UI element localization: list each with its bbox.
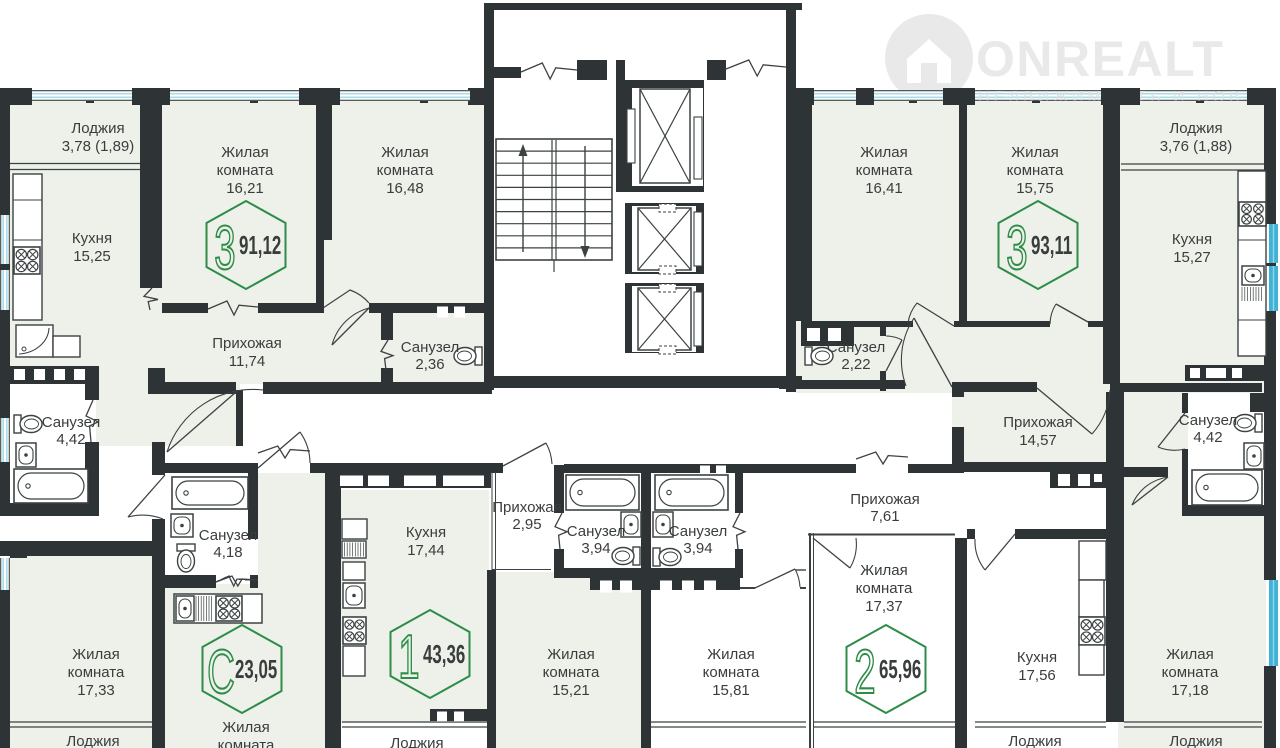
svg-text:91,12: 91,12: [239, 230, 281, 260]
svg-text:3: 3: [1006, 213, 1027, 283]
svg-text:4,18: 4,18: [213, 544, 242, 561]
svg-text:комната: комната: [1007, 162, 1064, 179]
svg-text:комната: комната: [68, 664, 125, 681]
svg-text:2: 2: [854, 637, 875, 707]
svg-text:комната: комната: [218, 737, 275, 748]
svg-text:1: 1: [398, 622, 419, 692]
svg-text:комната: комната: [856, 162, 913, 179]
svg-text:23,05: 23,05: [235, 654, 277, 684]
svg-text:3: 3: [214, 213, 235, 283]
svg-text:3,94: 3,94: [581, 540, 610, 557]
svg-text:Кухня: Кухня: [72, 230, 112, 247]
svg-text:Лоджия: Лоджия: [1008, 733, 1061, 748]
svg-text:15,25: 15,25: [73, 248, 111, 265]
svg-text:Жилая: Жилая: [221, 144, 268, 161]
svg-text:16,48: 16,48: [386, 180, 424, 197]
svg-text:комната: комната: [856, 580, 913, 597]
svg-text:2,22: 2,22: [841, 356, 870, 373]
svg-text:Жилая: Жилая: [1011, 144, 1058, 161]
svg-text:Кухня: Кухня: [406, 524, 446, 541]
svg-text:Прихожая: Прихожая: [1003, 414, 1073, 431]
svg-text:Лоджия: Лоджия: [71, 120, 124, 137]
svg-text:С: С: [207, 637, 235, 707]
svg-text:комната: комната: [703, 664, 760, 681]
svg-text:15,75: 15,75: [1016, 180, 1054, 197]
svg-text:Жилая: Жилая: [860, 562, 907, 579]
svg-text:17,44: 17,44: [407, 542, 445, 559]
svg-text:ONREALT: ONREALT: [976, 31, 1224, 87]
svg-text:43,36: 43,36: [423, 639, 465, 669]
svg-text:Жилая: Жилая: [860, 144, 907, 161]
svg-text:4,42: 4,42: [1193, 429, 1222, 446]
svg-text:Прихожая: Прихожая: [850, 491, 920, 508]
svg-text:17,56: 17,56: [1018, 667, 1056, 684]
svg-text:3,94: 3,94: [683, 540, 712, 557]
svg-text:2,95: 2,95: [512, 516, 541, 533]
svg-text:Лоджия: Лоджия: [66, 733, 119, 748]
svg-text:Санузел: Санузел: [199, 527, 257, 544]
svg-text:15,81: 15,81: [712, 682, 750, 699]
svg-text:4,42: 4,42: [56, 431, 85, 448]
svg-text:17,18: 17,18: [1171, 682, 1209, 699]
svg-text:Лоджия: Лоджия: [1169, 120, 1222, 137]
svg-text:Жилая: Жилая: [707, 646, 754, 663]
svg-text:Санузел: Санузел: [567, 523, 625, 540]
svg-text:Прихожая: Прихожая: [212, 335, 282, 352]
svg-text:Санузел: Санузел: [669, 523, 727, 540]
svg-text:Кухня: Кухня: [1017, 649, 1057, 666]
svg-text:Лоджия: Лоджия: [1169, 733, 1222, 748]
svg-text:Жилая: Жилая: [72, 646, 119, 663]
svg-text:комната: комната: [1162, 664, 1219, 681]
svg-text:17,37: 17,37: [865, 598, 903, 615]
svg-text:Лоджия: Лоджия: [390, 735, 443, 748]
svg-text:3,76 (1,88): 3,76 (1,88): [1160, 138, 1233, 155]
svg-text:17,33: 17,33: [77, 682, 115, 699]
svg-text:2,36: 2,36: [415, 356, 444, 373]
svg-text:комната: комната: [543, 664, 600, 681]
svg-text:3,78 (1,89): 3,78 (1,89): [62, 138, 135, 155]
svg-text:Жилая: Жилая: [547, 646, 594, 663]
svg-text:Санузел: Санузел: [1179, 412, 1237, 429]
svg-text:Кухня: Кухня: [1172, 231, 1212, 248]
svg-text:65,96: 65,96: [879, 654, 921, 684]
svg-text:7,61: 7,61: [870, 508, 899, 525]
svg-text:Санузел: Санузел: [827, 339, 885, 356]
svg-text:комната: комната: [377, 162, 434, 179]
svg-text:Жилая: Жилая: [222, 719, 269, 736]
svg-text:11,74: 11,74: [229, 353, 265, 370]
svg-text:14,57: 14,57: [1019, 432, 1057, 449]
svg-text:16,41: 16,41: [865, 180, 903, 197]
svg-text:Прихожая: Прихожая: [492, 499, 562, 516]
svg-text:16,21: 16,21: [226, 180, 264, 197]
svg-text:Жилая: Жилая: [1166, 646, 1213, 663]
svg-text:15,27: 15,27: [1173, 249, 1211, 266]
svg-text:Жилая: Жилая: [381, 144, 428, 161]
svg-text:93,11: 93,11: [1031, 230, 1072, 260]
svg-text:Санузел: Санузел: [42, 414, 100, 431]
svg-text:15,21: 15,21: [552, 682, 590, 699]
svg-text:Санузел: Санузел: [401, 339, 459, 356]
svg-text:комната: комната: [217, 162, 274, 179]
